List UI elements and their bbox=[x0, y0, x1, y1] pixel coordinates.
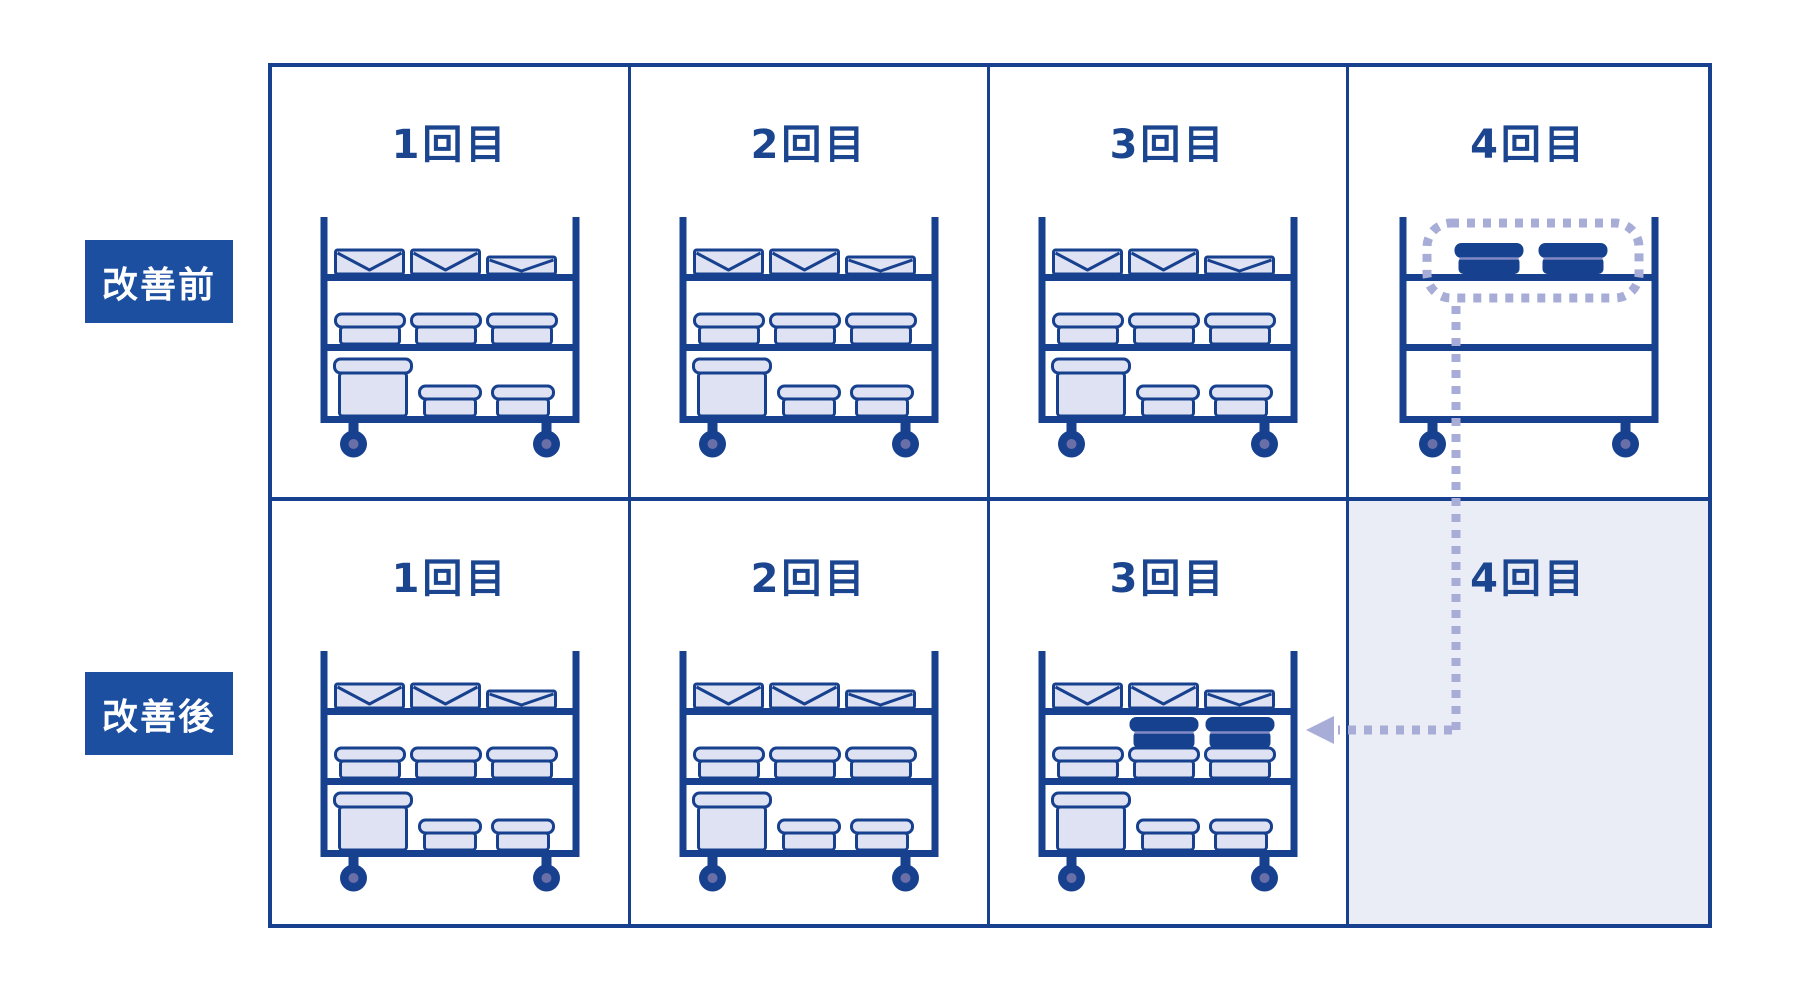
cell-after-round4-empty: 4回目 bbox=[1349, 501, 1708, 924]
cart-illustration bbox=[1397, 215, 1660, 461]
cart-illustration bbox=[1037, 649, 1300, 895]
hand-cart-icon bbox=[1037, 215, 1300, 461]
row-label-before: 改善前 bbox=[85, 240, 233, 323]
hand-cart-icon bbox=[319, 215, 582, 461]
hand-cart-icon bbox=[678, 649, 941, 895]
comparison-grid: 1回目 2回目 3回目 4回目 1回目 2回目 3回目 4回目 bbox=[268, 63, 1712, 928]
cell-header: 1回目 bbox=[272, 546, 628, 604]
cell-header: 3回目 bbox=[990, 546, 1346, 604]
hand-cart-icon bbox=[678, 215, 941, 461]
cell-before-round2: 2回目 bbox=[631, 67, 990, 501]
row-label-after: 改善後 bbox=[85, 672, 233, 755]
cart-illustration bbox=[1037, 215, 1300, 461]
cell-before-round3: 3回目 bbox=[990, 67, 1349, 501]
cell-after-round1: 1回目 bbox=[272, 501, 631, 924]
cell-after-round2: 2回目 bbox=[631, 501, 990, 924]
cart-illustration bbox=[319, 649, 582, 895]
cell-header: 2回目 bbox=[631, 546, 987, 604]
cell-header: 3回目 bbox=[990, 112, 1346, 170]
hand-cart-icon bbox=[1397, 215, 1660, 461]
cell-header: 4回目 bbox=[1349, 112, 1708, 170]
hand-cart-icon bbox=[319, 649, 582, 895]
improvement-comparison-diagram: 改善前 改善後 1回目 2回目 3回目 4回目 1回目 2回目 3回目 bbox=[0, 0, 1800, 1000]
cell-after-round3: 3回目 bbox=[990, 501, 1349, 924]
cell-before-round1: 1回目 bbox=[272, 67, 631, 501]
hand-cart-icon bbox=[1037, 649, 1300, 895]
cell-header: 4回目 bbox=[1349, 546, 1708, 604]
cart-illustration bbox=[678, 649, 941, 895]
cell-before-round4: 4回目 bbox=[1349, 67, 1708, 501]
cell-header: 1回目 bbox=[272, 112, 628, 170]
cart-illustration bbox=[1397, 649, 1660, 895]
cart-illustration bbox=[319, 215, 582, 461]
cart-illustration bbox=[678, 215, 941, 461]
cell-header: 2回目 bbox=[631, 112, 987, 170]
